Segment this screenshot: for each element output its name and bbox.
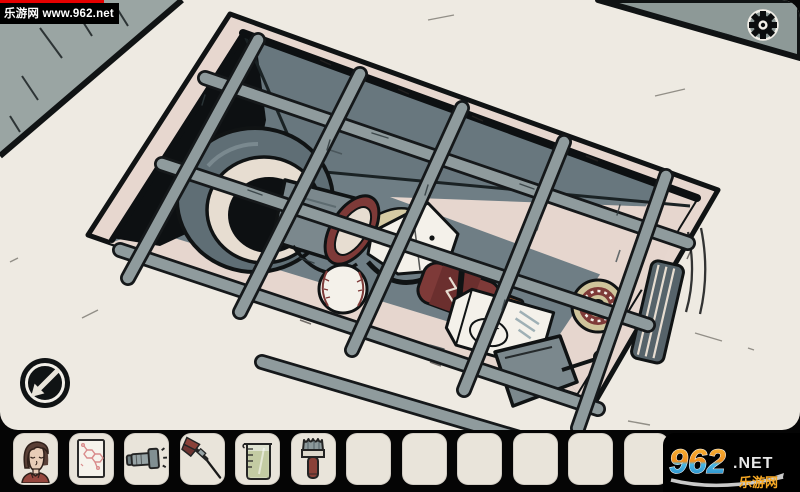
inventory-item-dart [181,435,224,483]
logo-domain: .NET [733,455,773,472]
back-button[interactable] [20,358,70,408]
inventory-item-measuring-cup [238,435,278,483]
inventory-slot-10[interactable] [513,433,558,485]
inventory-slot-11[interactable] [568,433,613,485]
inventory-slot-3[interactable] [124,433,169,485]
watermark-text: 乐游网 www.962.net [0,3,119,24]
inventory-slot-5[interactable] [235,433,280,485]
inventory-slot-4[interactable] [180,433,225,485]
inventory-item-molecule-note [73,437,109,481]
inventory-slot-8[interactable] [402,433,447,485]
logo-number: 962 [669,443,726,481]
inventory-slot-1[interactable] [13,433,58,485]
inventory-slot-12[interactable] [624,433,669,485]
inventory-item-paint-brush [293,434,333,484]
inventory-item-portrait-photo [15,435,56,483]
watermark-logo: 962 .NET 乐游网 [663,433,800,492]
game-scene: MILK [0,0,800,430]
logo-site-name: 乐游网 [739,475,778,490]
watermark-top-left: 乐游网 www.962.net [0,0,119,24]
inventory-slot-6[interactable] [291,433,336,485]
inventory-slot-7[interactable] [346,433,391,485]
baseball[interactable] [319,265,367,313]
inventory-slot-2[interactable] [69,433,114,485]
inventory-slot-9[interactable] [457,433,502,485]
inventory-item-flashlight [125,436,168,482]
scene-canvas: MILK [0,0,800,430]
